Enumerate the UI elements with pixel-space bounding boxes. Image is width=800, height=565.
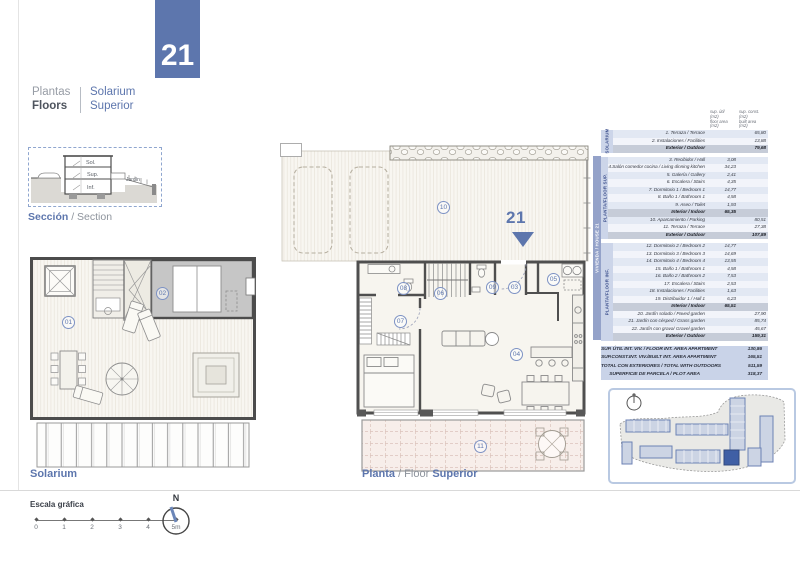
areas-table-header: sup. útil(m2)floor area(m2) sup. const.(… xyxy=(593,110,768,130)
table-row: 13. Dormitorio 3 / Bedroom 314,69 xyxy=(613,251,768,259)
scale-line xyxy=(36,520,176,521)
table-section: PLANTA/FLOOR SUP.3. Recibidor / Hall3,08… xyxy=(601,157,768,240)
col-header-built-area: sup. const.(m2)built area(m2) xyxy=(739,110,768,130)
highlighted-unit xyxy=(724,450,739,465)
scale-title: Escala gráfica xyxy=(30,500,84,509)
table-row: 7. Dormitorio 1 / Bedroom 114,77 xyxy=(608,187,768,195)
bed xyxy=(364,355,414,407)
table-row: 4.Salón comedor cocina / Living dinning … xyxy=(608,164,768,172)
page-title: Plantas Floors xyxy=(32,85,70,113)
section-caption-es: Sección xyxy=(28,211,68,223)
bottom-divider-rule xyxy=(0,490,800,491)
summary-row: SUPERFICIE DE PARCELA / PLOT AREA318,37 xyxy=(601,371,768,380)
table-row: 20. Jardín solado / Paved garden27,90 xyxy=(613,311,768,319)
table-section-band: SOLARIUM xyxy=(601,130,613,153)
section-caption-en: / Section xyxy=(68,211,112,223)
areas-table: sup. útil(m2)floor area(m2) sup. const.(… xyxy=(593,110,768,380)
table-row: 15. Baño 1 / Bathroom 14,58 xyxy=(613,266,768,274)
table-row: 10. Aparcamiento / Parking80,51 xyxy=(608,217,768,225)
table-sections: SOLARIUM1. Terraza / Terrace65,802. Inst… xyxy=(593,130,768,341)
unit-marker-label: 21 xyxy=(506,208,526,228)
room-marker-01: 01 xyxy=(62,316,75,329)
page-subtitle: Solarium Superior xyxy=(90,85,135,113)
table-row: Exterior / Outdoor159,31 xyxy=(613,333,768,341)
table-row: 16. Baño 2 / Bathroom 27,53 xyxy=(613,273,768,281)
section-label-sup: Sup. xyxy=(87,172,99,178)
side-table xyxy=(486,333,499,346)
kitchen-counter xyxy=(573,295,584,381)
section-drawing: Sol. Sup. Inf. Jardín xyxy=(29,148,159,204)
section-ground-left xyxy=(31,178,61,203)
table-row: 2. Instalaciones / Facilities13,88 xyxy=(613,138,768,146)
room-marker-06: 06 xyxy=(434,287,447,300)
summary-row: SUP. ÚTIL INT. VIV. / FLOOR INT. AREA AP… xyxy=(601,346,768,355)
table-row: Exterior / Outdoor107,89 xyxy=(608,232,768,240)
summary-row: TOTAL CON EXTERIORES / TOTAL WITH OUTDOO… xyxy=(601,363,768,372)
subtitle-superior: Superior xyxy=(90,99,135,113)
table-row: Interior / Indoor65,51 xyxy=(613,303,768,311)
floor-superior-plan xyxy=(280,143,592,479)
car-outline xyxy=(38,173,60,178)
room-marker-10: 10 xyxy=(437,201,450,214)
table-summary: SUP. ÚTIL INT. VIV. / FLOOR INT. AREA AP… xyxy=(601,346,768,380)
table-row: 18. Instalaciones / Facilities1,63 xyxy=(613,288,768,296)
pergola-louvers xyxy=(37,423,249,467)
site-plan xyxy=(610,390,790,478)
table-row: 5. Galería / Gallery2,41 xyxy=(608,172,768,180)
title-plantas: Plantas xyxy=(32,85,70,99)
title-divider xyxy=(80,87,81,113)
room-marker-05: 05 xyxy=(547,273,560,286)
table-section-band: PLANTA/FLOOR INF. xyxy=(601,243,613,341)
unit-marker-arrow-icon xyxy=(512,232,534,247)
solarium-caption: Solarium xyxy=(30,468,77,480)
unit-number: 21 xyxy=(161,41,194,78)
section-label-inf: Inf. xyxy=(87,185,95,191)
dining-table xyxy=(60,351,77,389)
room-marker-03: 03 xyxy=(508,281,521,294)
table-row: 12. Dormitorio 2 / Bedroom 214,77 xyxy=(613,243,768,251)
table-row: 22. Jardín con grava/ Gravel garden45,67 xyxy=(613,326,768,334)
table-row: 8. Baño 1 / Bathroom 14,58 xyxy=(608,194,768,202)
stone-wall xyxy=(390,146,588,160)
table-row: Interior / Indoor65,35 xyxy=(608,209,768,217)
solarium-plan xyxy=(30,257,256,469)
room-marker-09: 09 xyxy=(486,281,499,294)
section-drawing-box: Sol. Sup. Inf. Jardín xyxy=(28,147,162,207)
room-marker-11: 11 xyxy=(474,440,487,453)
plan-sheet-page: 21 Plantas Floors Solarium Superior xyxy=(0,0,800,565)
room-marker-04: 04 xyxy=(510,348,523,361)
caption-planta: Planta xyxy=(362,468,395,480)
section-caption: Sección / Section xyxy=(28,211,112,223)
room-marker-02: 02 xyxy=(156,287,169,300)
table-section-band: PLANTA/FLOOR SUP. xyxy=(601,157,608,240)
table-outer-band: VIVIENDA / HOUSE 21 xyxy=(593,156,601,340)
parking-deck xyxy=(282,151,588,261)
table-row: 17. Escalera / Stairs2,53 xyxy=(613,281,768,289)
caption-floor: / Floor xyxy=(395,468,432,480)
floor-superior-caption: Planta / Floor Superior xyxy=(362,468,478,480)
table-section: PLANTA/FLOOR INF.12. Dormitorio 2 / Bedr… xyxy=(601,243,768,341)
table-row: 3. Recibidor / Hall3,08 xyxy=(608,157,768,165)
entrance-opening xyxy=(501,260,526,265)
table-row: 14. Dormitorio 4 / Bedroom 413,55 xyxy=(613,258,768,266)
summary-row: SUP.CONST.INT. VIV./BUILT INT. AREA APAR… xyxy=(601,354,768,363)
unit-number-box: 21 xyxy=(155,0,200,78)
caption-superior: Superior xyxy=(432,468,477,480)
north-compass-icon xyxy=(156,500,196,540)
table-row: 11. Terraza / Terrace27,38 xyxy=(608,224,768,232)
room-marker-08: 08 xyxy=(397,282,410,295)
room-marker-07: 07 xyxy=(394,315,407,328)
table-row: 9. Aseo / Toilet1,93 xyxy=(608,202,768,210)
col-header-floor-area: sup. útil(m2)floor area(m2) xyxy=(710,110,739,130)
site-plan-box xyxy=(608,388,796,484)
table-section: SOLARIUM1. Terraza / Terrace65,802. Inst… xyxy=(601,130,768,153)
title-floors: Floors xyxy=(32,99,70,113)
windows xyxy=(374,410,566,416)
table-row: 19. Distribuidor 1 / Hall 16,23 xyxy=(613,296,768,304)
section-label-jardin: Jardín xyxy=(126,177,140,183)
sofa xyxy=(442,331,485,346)
table-row: 21. Jardín con césped / Grass garden85,7… xyxy=(613,318,768,326)
section-label-sol: Sol. xyxy=(86,160,96,166)
subtitle-solarium: Solarium xyxy=(90,85,135,99)
table-row: 1. Terraza / Terrace65,80 xyxy=(613,130,768,138)
table-row: 6. Escalera / Stairs4,35 xyxy=(608,179,768,187)
site-compass-icon xyxy=(627,394,641,411)
left-margin-rule xyxy=(18,0,19,490)
table-row: Exterior / Outdoor79,68 xyxy=(613,145,768,153)
